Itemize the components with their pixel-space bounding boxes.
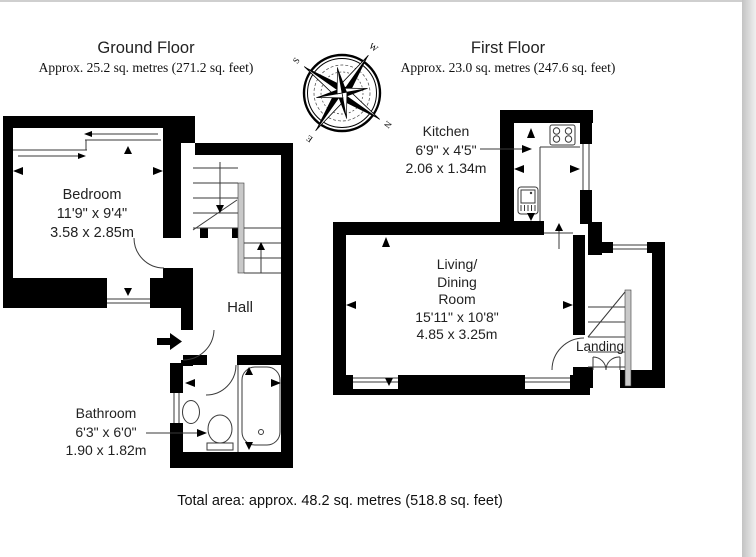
compass-west-label: W: [367, 43, 380, 54]
kitchen-doorway: [544, 223, 573, 249]
page-edge-strip: [742, 0, 756, 557]
living-dims-metric: 4.85 x 3.25m: [403, 326, 511, 344]
landing-double-door-left: [593, 357, 606, 370]
toilet: [208, 415, 232, 443]
bedroom-bottom-window: [107, 299, 150, 303]
hall-label: Hall: [214, 298, 266, 317]
kitchen-window: [583, 144, 589, 190]
bathroom-name: Bathroom: [48, 404, 164, 423]
living-name-line3: Room: [403, 291, 511, 309]
kitchen-fixtures: [518, 125, 580, 221]
landing-name: Landing: [569, 337, 631, 356]
bathroom-door-arc: [206, 365, 236, 395]
basin: [183, 401, 200, 424]
total-area-text: Total area: approx. 48.2 sq. metres (518…: [90, 493, 590, 509]
stairs-down-arrow: [216, 205, 224, 213]
compass-south-label: S: [291, 56, 302, 66]
landing-window: [613, 245, 647, 249]
kitchen-dims-metric: 2.06 x 1.34m: [391, 159, 501, 178]
hall-staircase: [193, 162, 281, 273]
ground-floor-title: Ground Floor: [20, 38, 272, 59]
living-name-line1: Living/: [403, 256, 511, 274]
landing-double-door-right: [606, 357, 620, 370]
kitchen-label: Kitchen 6'9" x 4'5" 2.06 x 1.34m: [391, 122, 501, 178]
kitchen-dims-imperial: 6'9" x 4'5": [391, 141, 501, 160]
top-border-line: [0, 0, 756, 2]
landing-handrail: [588, 292, 625, 337]
bedroom-window: [13, 131, 161, 159]
kitchen-name: Kitchen: [391, 122, 501, 141]
living-dims-imperial: 15'11" x 10'8": [403, 309, 511, 327]
bedroom-dims-metric: 3.58 x 2.85m: [34, 224, 150, 243]
bathroom-fixtures: [174, 365, 280, 452]
hob: [550, 125, 575, 145]
ground-floor-header: Ground Floor Approx. 25.2 sq. metres (27…: [20, 38, 272, 76]
bedroom-name: Bedroom: [34, 186, 150, 205]
landing-label: Landing: [569, 337, 631, 356]
first-floor-header: First Floor Approx. 23.0 sq. metres (247…: [382, 38, 634, 76]
living-name-line2: Dining: [403, 274, 511, 292]
entry-arrow: [157, 333, 182, 350]
living-room-label: Living/ Dining Room 15'11" x 10'8" 4.85 …: [403, 256, 511, 344]
ground-floor-area: Approx. 25.2 sq. metres (271.2 sq. feet): [20, 59, 272, 76]
bedroom-label: Bedroom 11'9" x 9'4" 3.58 x 2.85m: [34, 186, 150, 243]
hall-name: Hall: [214, 298, 266, 317]
floorplan-page: Ground Floor Approx. 25.2 sq. metres (27…: [0, 0, 756, 557]
bathroom-dims-imperial: 6'3" x 6'0": [48, 423, 164, 442]
bedroom-dims-imperial: 11'9" x 9'4": [34, 205, 150, 224]
first-floor-area: Approx. 23.0 sq. metres (247.6 sq. feet): [382, 59, 634, 76]
stair-handrail: [193, 200, 237, 230]
bathroom-label: Bathroom 6'3" x 6'0" 1.90 x 1.82m: [48, 404, 164, 460]
bathroom-dims-metric: 1.90 x 1.82m: [48, 441, 164, 460]
first-floor-title: First Floor: [382, 38, 634, 59]
compass-east-label: E: [304, 133, 315, 145]
